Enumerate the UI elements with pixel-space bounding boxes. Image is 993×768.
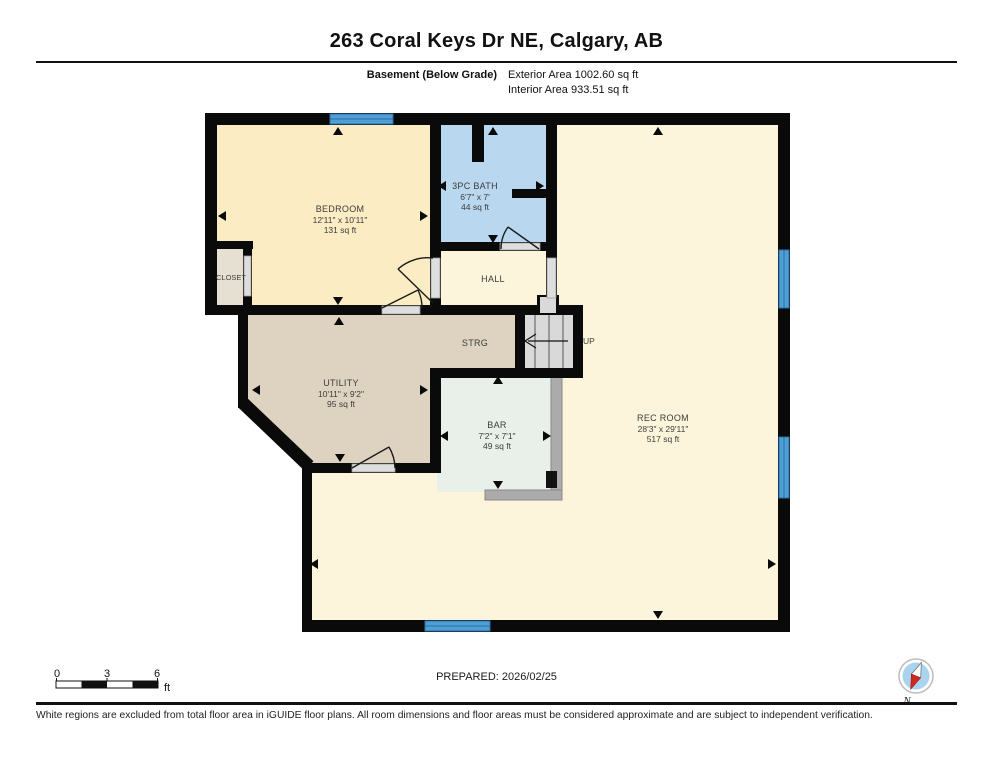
bar-area: 49 sq ft — [483, 441, 512, 451]
floorplan-page: 263 Coral Keys Dr NE, Calgary, AB Baseme… — [0, 0, 993, 768]
rec-room-name: REC ROOM — [637, 413, 689, 423]
bedroom-dims: 12'11" x 10'11" — [313, 215, 368, 225]
bedroom-name: BEDROOM — [316, 204, 365, 214]
compass: N — [899, 659, 933, 707]
bath-dims: 6'7" x 7' — [460, 192, 490, 202]
utility-name: UTILITY — [323, 378, 359, 388]
scale-unit: ft — [164, 682, 170, 694]
bar-dims: 7'2" x 7'1" — [478, 431, 515, 441]
closet-name: CLOSET — [216, 273, 246, 282]
up-label: UP — [583, 336, 595, 346]
utility-dims: 10'11" x 9'2" — [318, 389, 364, 399]
bar-appliance — [546, 471, 557, 488]
footer-divider — [36, 702, 957, 705]
window-right-upper — [779, 250, 789, 308]
window-right-lower — [779, 437, 789, 498]
bath-name: 3PC BATH — [452, 181, 498, 191]
bar-name: BAR — [487, 420, 507, 430]
window-bottom — [425, 621, 490, 631]
hall-name: HALL — [481, 274, 505, 284]
compass-n-label: N — [902, 695, 911, 707]
bedroom-area: 131 sq ft — [324, 225, 357, 235]
rec-room-area: 517 sq ft — [647, 434, 680, 444]
prepared-date: PREPARED: 2026/02/25 — [0, 671, 993, 683]
strg-name: STRG — [462, 338, 488, 348]
rec-room-dims: 28'3" x 29'11" — [638, 424, 689, 434]
window-top — [330, 114, 393, 124]
bath-area: 44 sq ft — [461, 202, 490, 212]
disclaimer-text: White regions are excluded from total fl… — [36, 710, 973, 721]
floorplan-drawing: BEDROOM 12'11" x 10'11" 131 sq ft CLOSET… — [0, 0, 993, 768]
utility-area: 95 sq ft — [327, 399, 356, 409]
